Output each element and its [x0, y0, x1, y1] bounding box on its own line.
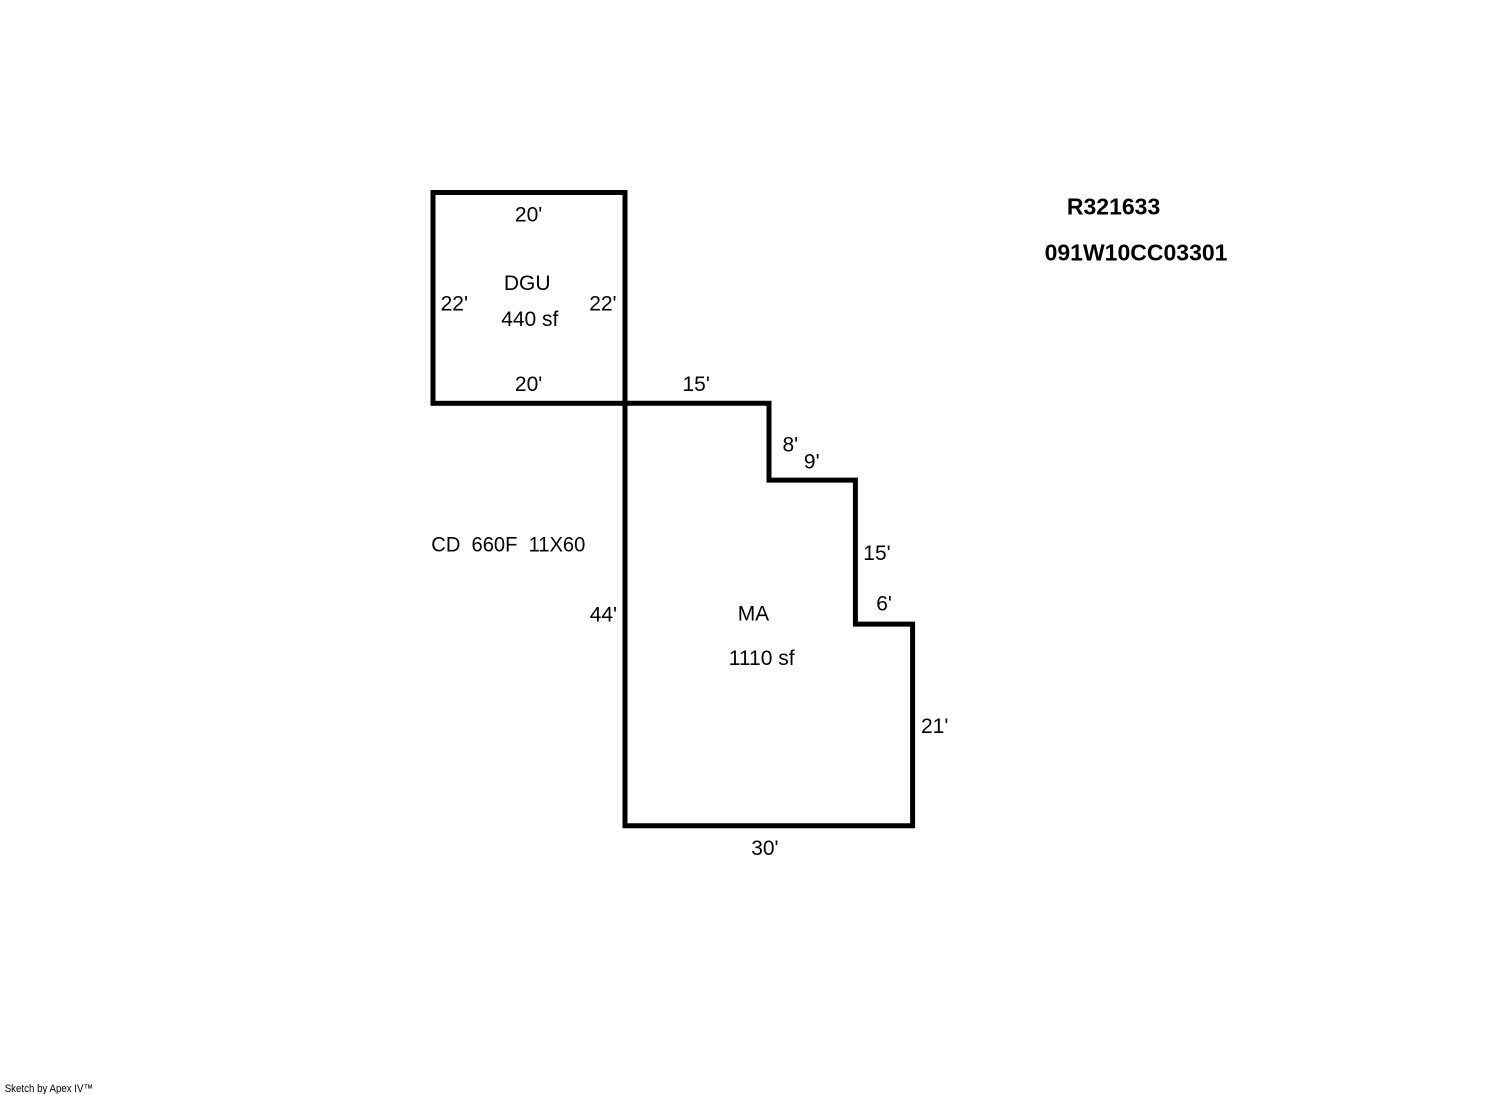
svg-text:22': 22' [441, 293, 468, 316]
svg-text:CD 660F 11X60: CD 660F 11X60 [431, 534, 585, 557]
svg-text:091W10CC03301: 091W10CC03301 [1045, 240, 1228, 266]
svg-text:44': 44' [590, 603, 617, 626]
svg-text:21': 21' [921, 715, 948, 738]
svg-text:8': 8' [783, 433, 799, 456]
svg-text:22': 22' [589, 293, 616, 316]
svg-text:6': 6' [876, 593, 892, 616]
svg-text:30': 30' [751, 837, 778, 860]
svg-text:1110 sf: 1110 sf [729, 647, 795, 670]
svg-text:MA: MA [738, 603, 770, 626]
svg-text:440 sf: 440 sf [501, 308, 558, 331]
svg-text:15': 15' [683, 373, 710, 396]
svg-text:20': 20' [515, 373, 542, 396]
svg-text:20': 20' [515, 203, 542, 226]
svg-text:R321633: R321633 [1067, 193, 1160, 219]
svg-text:DGU: DGU [504, 272, 551, 295]
svg-text:9': 9' [804, 451, 820, 474]
svg-text:15': 15' [863, 542, 890, 565]
svg-text:Sketch by Apex IV™: Sketch by Apex IV™ [5, 1083, 94, 1094]
